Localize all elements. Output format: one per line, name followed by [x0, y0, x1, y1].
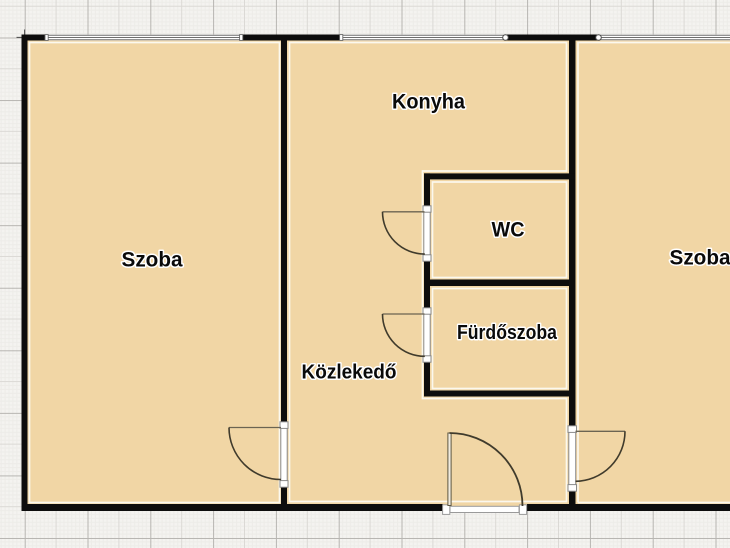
- svg-text:WC: WC: [492, 219, 525, 242]
- svg-text:Szoba: Szoba: [122, 249, 183, 272]
- svg-text:Szoba: Szoba: [670, 247, 730, 270]
- svg-text:Konyha: Konyha: [392, 91, 465, 114]
- svg-text:Közlekedő: Közlekedő: [302, 362, 397, 384]
- svg-text:Fürdőszoba: Fürdőszoba: [457, 322, 558, 344]
